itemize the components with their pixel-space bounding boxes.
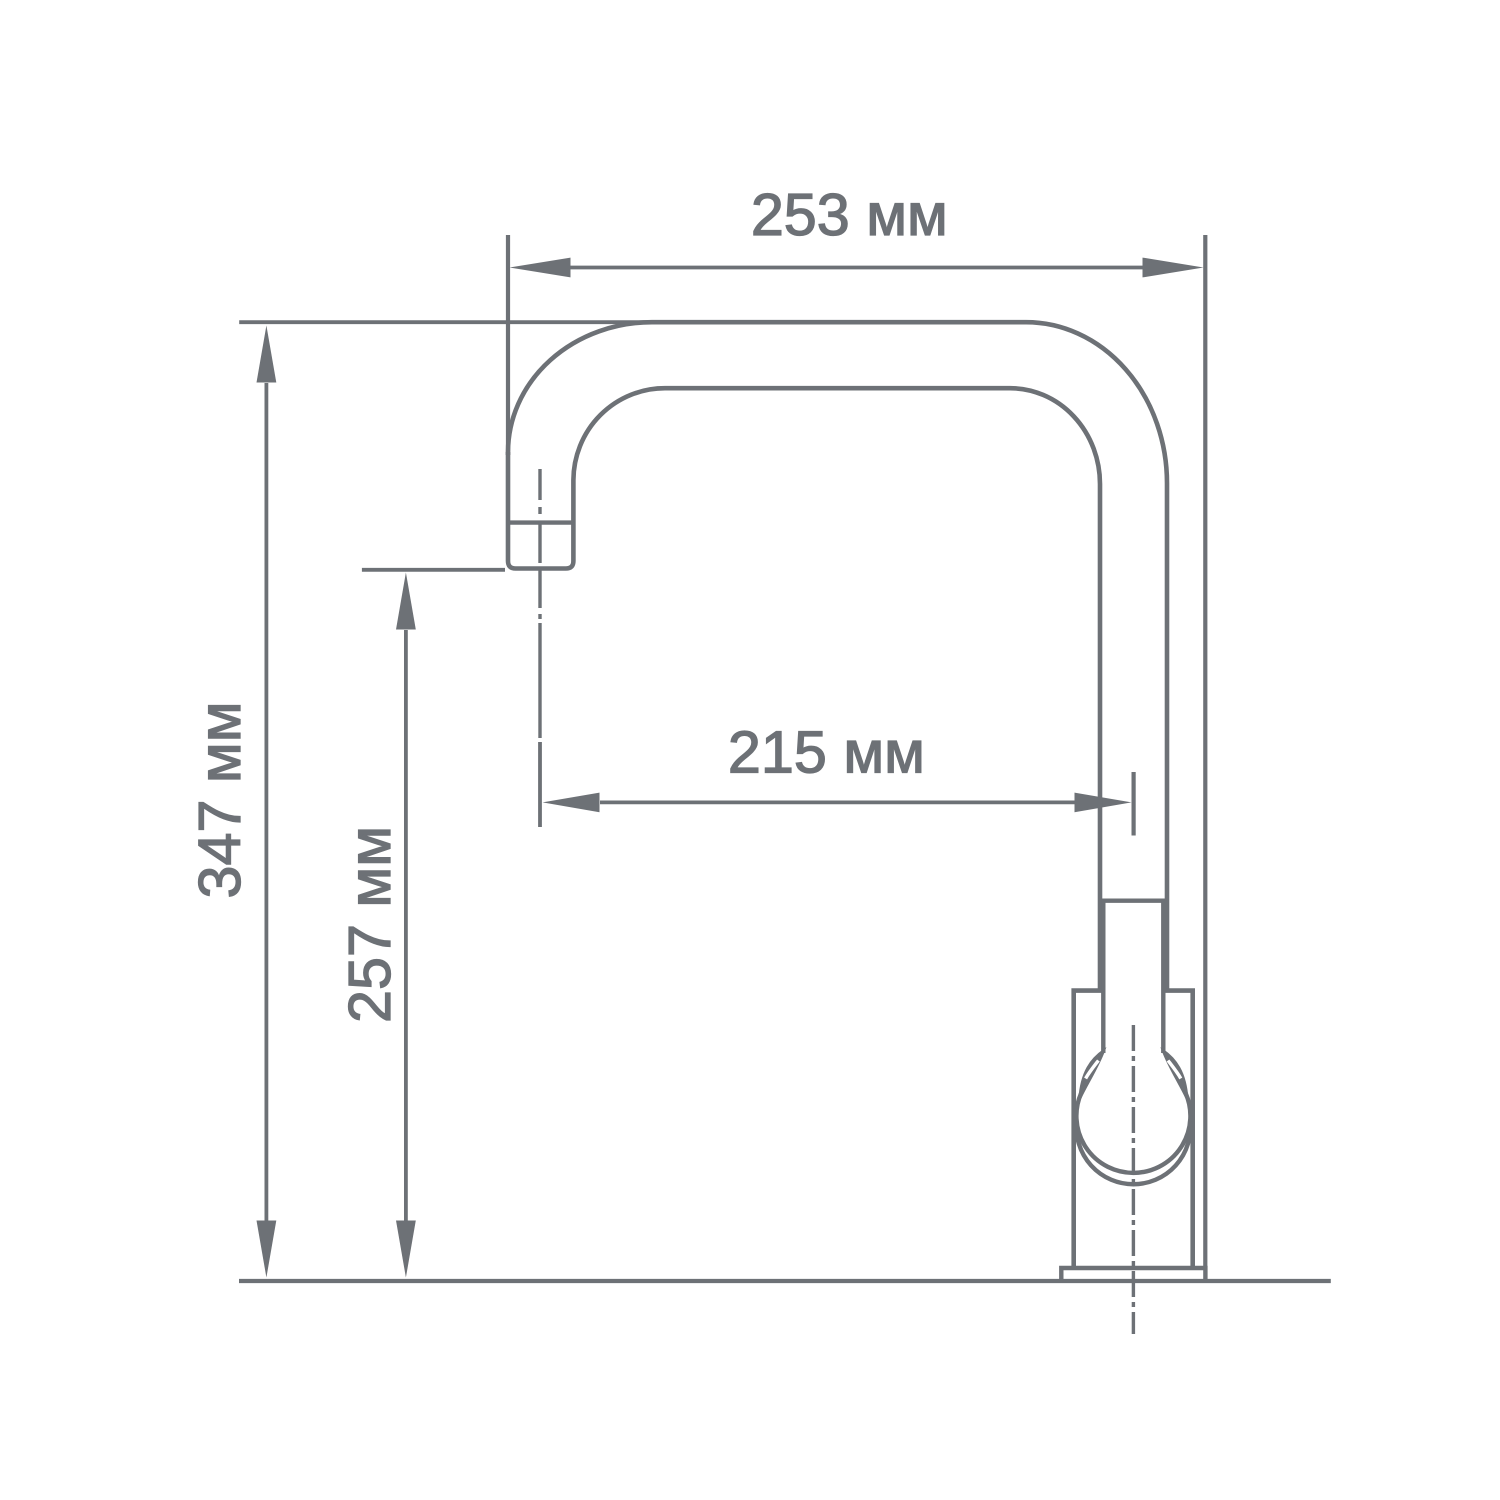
svg-text:347 мм: 347 мм — [186, 702, 253, 899]
svg-text:215 мм: 215 мм — [728, 719, 925, 786]
svg-text:253 мм: 253 мм — [751, 181, 948, 248]
svg-text:257 мм: 257 мм — [336, 826, 403, 1023]
